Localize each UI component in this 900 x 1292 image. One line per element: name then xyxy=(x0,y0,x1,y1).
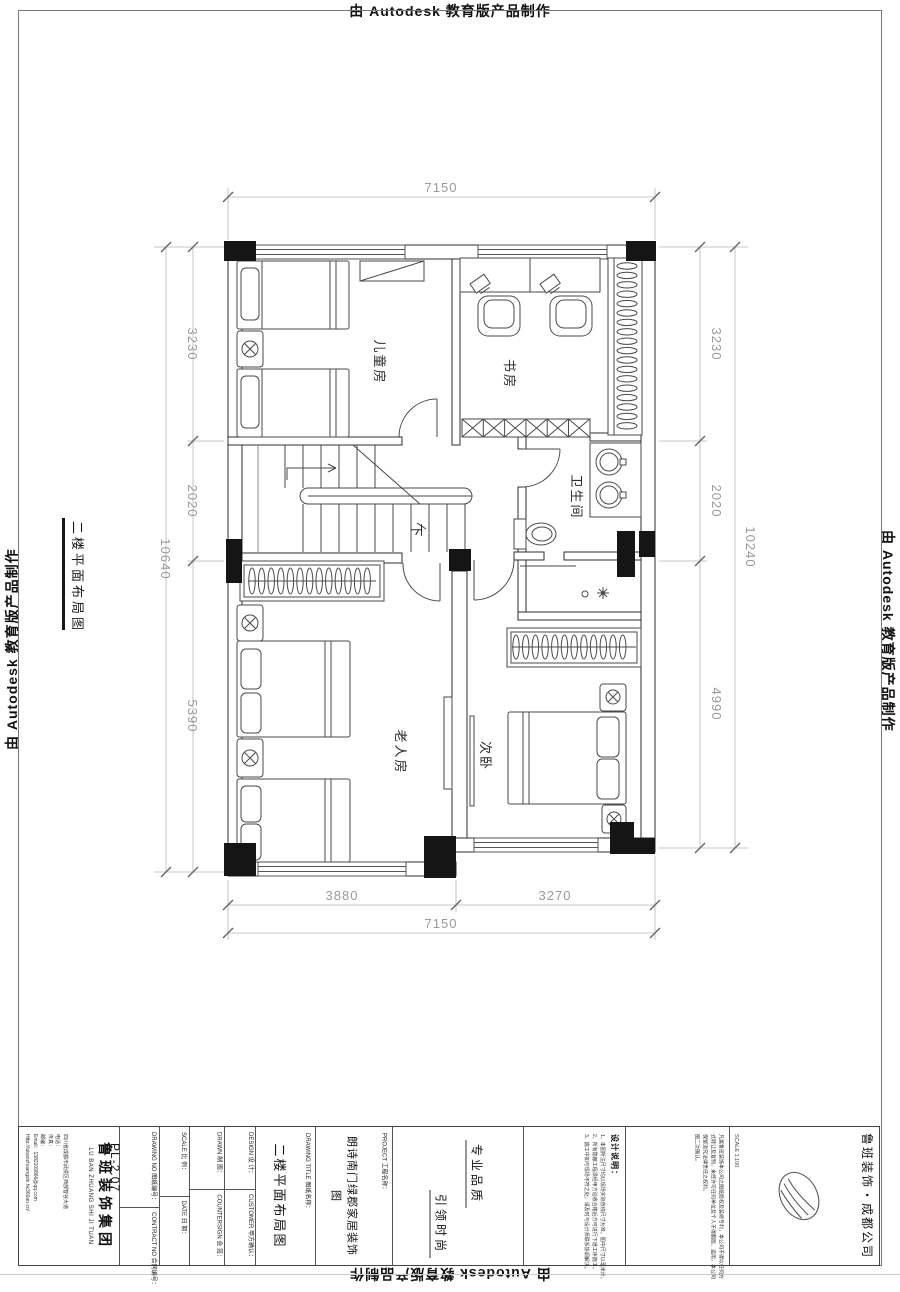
company-contact: 四川省成都市武侯区西部智谷大道 电话： 传真： 邮编： Email：138210… xyxy=(23,1134,68,1258)
svg-text:3270: 3270 xyxy=(539,888,572,903)
svg-text:7150: 7150 xyxy=(425,916,458,931)
door-second-bedroom xyxy=(474,560,514,600)
copyright-line: 式转让及复制，未经许可任何单位及个人不得翻版、盗用，本公司 xyxy=(709,1134,717,1258)
company-name-pinyin: LU BAN ZHUANG SHI JI TUAN xyxy=(87,1134,93,1258)
svg-text:3230: 3230 xyxy=(185,328,200,361)
tb-drawingno-cell: DRAWING NO 图纸编号： PL-2.07 CONTRACT NO 合同编… xyxy=(119,1127,159,1265)
customer-label: CUSTOMER 甲方确认： xyxy=(245,1194,253,1260)
luban-logo-icon xyxy=(770,1167,828,1225)
svg-text:10240: 10240 xyxy=(743,526,758,567)
design-note: 2、所有隐蔽工程须经甲方验收合格后方可进行下道工序施工。 xyxy=(590,1134,598,1258)
room-label-second: 次卧 xyxy=(478,741,493,771)
room-label-study: 书房 xyxy=(502,359,517,389)
drawing-title-label: DRAWING TITLE 图纸名称： xyxy=(304,1133,313,1259)
svg-text:3230: 3230 xyxy=(709,328,724,361)
svg-text:5390: 5390 xyxy=(185,700,200,733)
design-label: DESIGN 设 计： xyxy=(245,1132,253,1185)
tb-company-cell: 鲁班装饰集团 LU BAN ZHUANG SHI JI TUAN 四川省成都市武… xyxy=(19,1127,119,1265)
tb-drawn-cell: DRAWN 制 图： COUNTERSIGN 会 签： xyxy=(189,1127,224,1265)
countersign-label: COUNTERSIGN 会 签： xyxy=(214,1194,222,1260)
project-label: PROJECT 工程名称： xyxy=(381,1133,390,1259)
room-label-children: 儿童房 xyxy=(372,339,387,384)
drawing-no-label: DRAWING NO 图纸编号： xyxy=(149,1132,157,1203)
furniture-study xyxy=(460,258,642,437)
slogan-fashion: 引领时尚 xyxy=(430,1190,450,1258)
design-notes-title: 设计说明： xyxy=(609,1134,620,1258)
tb-drawing-title-cell: DRAWING TITLE 图纸名称： 二楼平面布局图 xyxy=(255,1127,315,1265)
room-labels: 儿童房 书房 卫生间 老人房 次卧 下 xyxy=(372,339,584,774)
tb-notes-cell: 设计说明： 1、本图所注尺寸均以现场实际放线尺寸为准，图中尺寸以毫米计。 2、所… xyxy=(523,1127,625,1265)
tb-slogan-cell: 专业品质 引领时尚 xyxy=(392,1127,523,1265)
door-children-room xyxy=(399,399,437,437)
tb-project-cell: PROJECT 工程名称： 朗诗南门绿郡家居装饰图 xyxy=(315,1127,392,1265)
svg-text:2020: 2020 xyxy=(185,485,200,518)
branch-name: 鲁班装饰・成都公司 xyxy=(859,1128,876,1264)
floor-plan-svg: 7150 3880 3270 7150 3230 2020 5390 10640… xyxy=(0,0,900,1060)
design-note: 1、本图所注尺寸均以现场实际放线尺寸为准，图中尺寸以毫米计。 xyxy=(598,1134,606,1258)
tb-scale-date-cell: SCALE 比 例： DATE 日 期： xyxy=(159,1127,189,1265)
copyright-line: 凡属鲁班装饰本公司之图纸版权及装修专利，本公司不得以任何方 xyxy=(717,1134,725,1258)
design-note: 3、施工中如与现场不符之处，请及时与设计师联系协调解决。 xyxy=(582,1134,590,1258)
room-label-elder: 老人房 xyxy=(393,729,408,774)
furniture-second-bedroom xyxy=(444,628,641,833)
svg-text:7150: 7150 xyxy=(425,180,458,195)
svg-text:10640: 10640 xyxy=(158,538,173,579)
furniture-children-room xyxy=(237,261,424,437)
tb-design-cell: DESIGN 设 计： CUSTOMER 甲方确认： xyxy=(224,1127,256,1265)
tb-copyright-cell: 凡属鲁班装饰本公司之图纸版权及装修专利，本公司不得以任何方 式转让及复制，未经许… xyxy=(625,1127,730,1265)
tb-logo-cell: 鲁班装饰・成都公司 SCALE 1:100 xyxy=(729,1127,879,1265)
svg-text:2020: 2020 xyxy=(709,485,724,518)
drawn-label: DRAWN 制 图： xyxy=(214,1132,222,1185)
drawing-no-value: PL-2.07 xyxy=(109,1132,123,1203)
toilet xyxy=(514,519,556,549)
company-fax: 传真： xyxy=(45,1134,53,1258)
company-phone: 电话： xyxy=(53,1134,61,1258)
room-label-bathroom: 卫生间 xyxy=(569,474,584,519)
svg-text:4990: 4990 xyxy=(709,688,724,721)
drawing-title-value: 二楼平面布局图 xyxy=(271,1133,290,1259)
scale-label: SCALE 比 例： xyxy=(179,1132,187,1192)
furniture-elder-room xyxy=(237,561,384,862)
door-elder-room xyxy=(403,563,440,601)
contract-no-label: CONTRACT NO 合同编号： xyxy=(149,1212,157,1288)
svg-text:3880: 3880 xyxy=(326,888,359,903)
slogan-quality: 专业品质 xyxy=(466,1140,486,1208)
company-web: Http://lubanzhuangshi.hk360an.cn/ xyxy=(23,1134,31,1258)
title-block: 鲁班装饰集团 LU BAN ZHUANG SHI JI TUAN 四川省成都市武… xyxy=(18,1126,880,1266)
logo-scale-note: SCALE 1:100 xyxy=(733,1134,739,1264)
stair-down-label: 下 xyxy=(409,523,424,538)
company-zip: 邮编： xyxy=(38,1134,46,1258)
copyright-line: 图二次确认。 xyxy=(693,1134,701,1258)
company-email: Email：1382109866@qq.com xyxy=(30,1134,38,1258)
project-name: 朗诗南门绿郡家居装饰图 xyxy=(329,1133,361,1259)
door-bathroom xyxy=(522,449,560,487)
date-label: DATE 日 期： xyxy=(179,1201,187,1261)
shower-symbol xyxy=(597,587,609,599)
company-address: 四川省成都市武侯区西部智谷大道 xyxy=(60,1134,68,1258)
staircase xyxy=(258,445,472,553)
